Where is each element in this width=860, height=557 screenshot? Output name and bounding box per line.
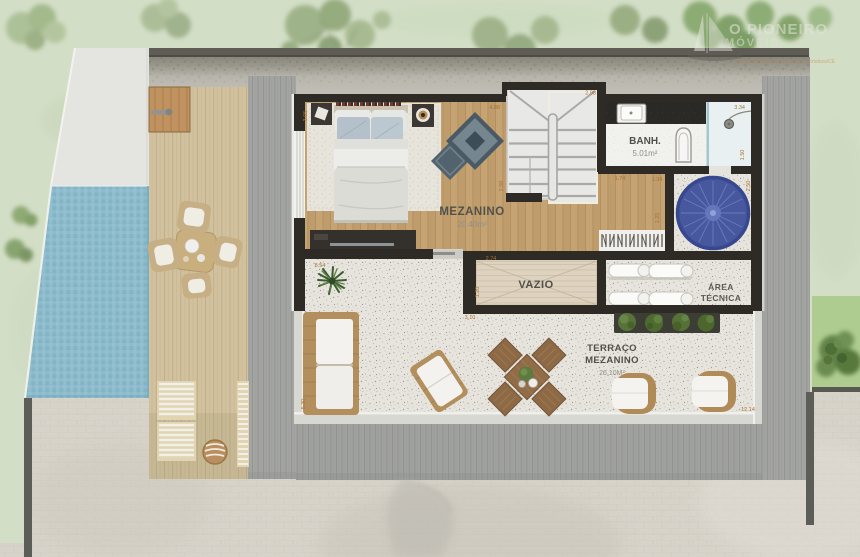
svg-text:IMÓVEIS: IMÓVEIS <box>720 36 780 49</box>
svg-text:8.54: 8.54 <box>315 263 326 269</box>
svg-text:26,10M²: 26,10M² <box>599 370 625 377</box>
svg-text:2.74: 2.74 <box>486 256 497 262</box>
svg-text:www.opioneiroimoveis.com.br: www.opioneiroimoveis.com.br <box>744 66 804 71</box>
svg-text:2.50: 2.50 <box>499 181 505 192</box>
svg-text:2.50: 2.50 <box>746 181 752 192</box>
svg-text:Av. Washington Soares, 1000 -: Av. Washington Soares, 1000 - Fortaleza/… <box>736 59 836 65</box>
svg-text:TERRAÇO: TERRAÇO <box>587 343 637 354</box>
svg-text:12.14: 12.14 <box>741 407 755 413</box>
svg-text:1.50: 1.50 <box>740 150 746 161</box>
svg-text:5.30: 5.30 <box>301 399 307 410</box>
svg-text:3.34: 3.34 <box>734 105 745 111</box>
svg-text:1.20: 1.20 <box>475 287 481 298</box>
svg-text:BANH.: BANH. <box>629 136 661 147</box>
svg-text:VAZIO: VAZIO <box>518 279 553 291</box>
svg-text:1.34: 1.34 <box>652 177 663 183</box>
svg-text:TÉCNICA: TÉCNICA <box>701 293 742 303</box>
svg-text:4.88: 4.88 <box>489 105 500 111</box>
svg-text:5.01m²: 5.01m² <box>633 149 658 158</box>
svg-text:3.05: 3.05 <box>303 111 309 122</box>
svg-text:2.98: 2.98 <box>585 91 596 97</box>
svg-text:ÁREA: ÁREA <box>708 282 734 292</box>
svg-text:3.10: 3.10 <box>465 315 476 321</box>
svg-text:MEZANINO: MEZANINO <box>439 206 504 218</box>
svg-text:MEZANINO: MEZANINO <box>585 355 639 366</box>
svg-text:20.40m²: 20.40m² <box>457 220 487 229</box>
svg-text:1.74: 1.74 <box>615 176 626 182</box>
svg-text:O PIONEIRO: O PIONEIRO <box>729 21 828 38</box>
svg-text:1.25: 1.25 <box>655 213 661 224</box>
